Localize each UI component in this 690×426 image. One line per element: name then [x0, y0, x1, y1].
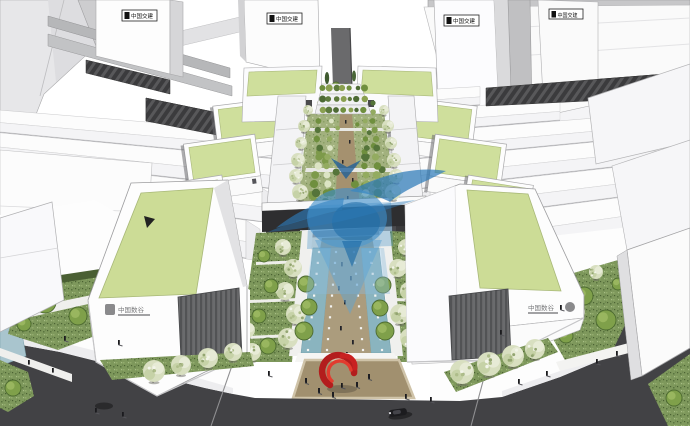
svg-text:中国交建: 中国交建 — [131, 12, 154, 20]
svg-text:中国数谷: 中国数谷 — [528, 303, 555, 312]
svg-text:中国交建: 中国交建 — [453, 17, 476, 25]
svg-text:中国交建: 中国交建 — [276, 15, 299, 23]
svg-text:中国交建: 中国交建 — [558, 12, 578, 19]
svg-text:中国数谷: 中国数谷 — [118, 305, 145, 314]
